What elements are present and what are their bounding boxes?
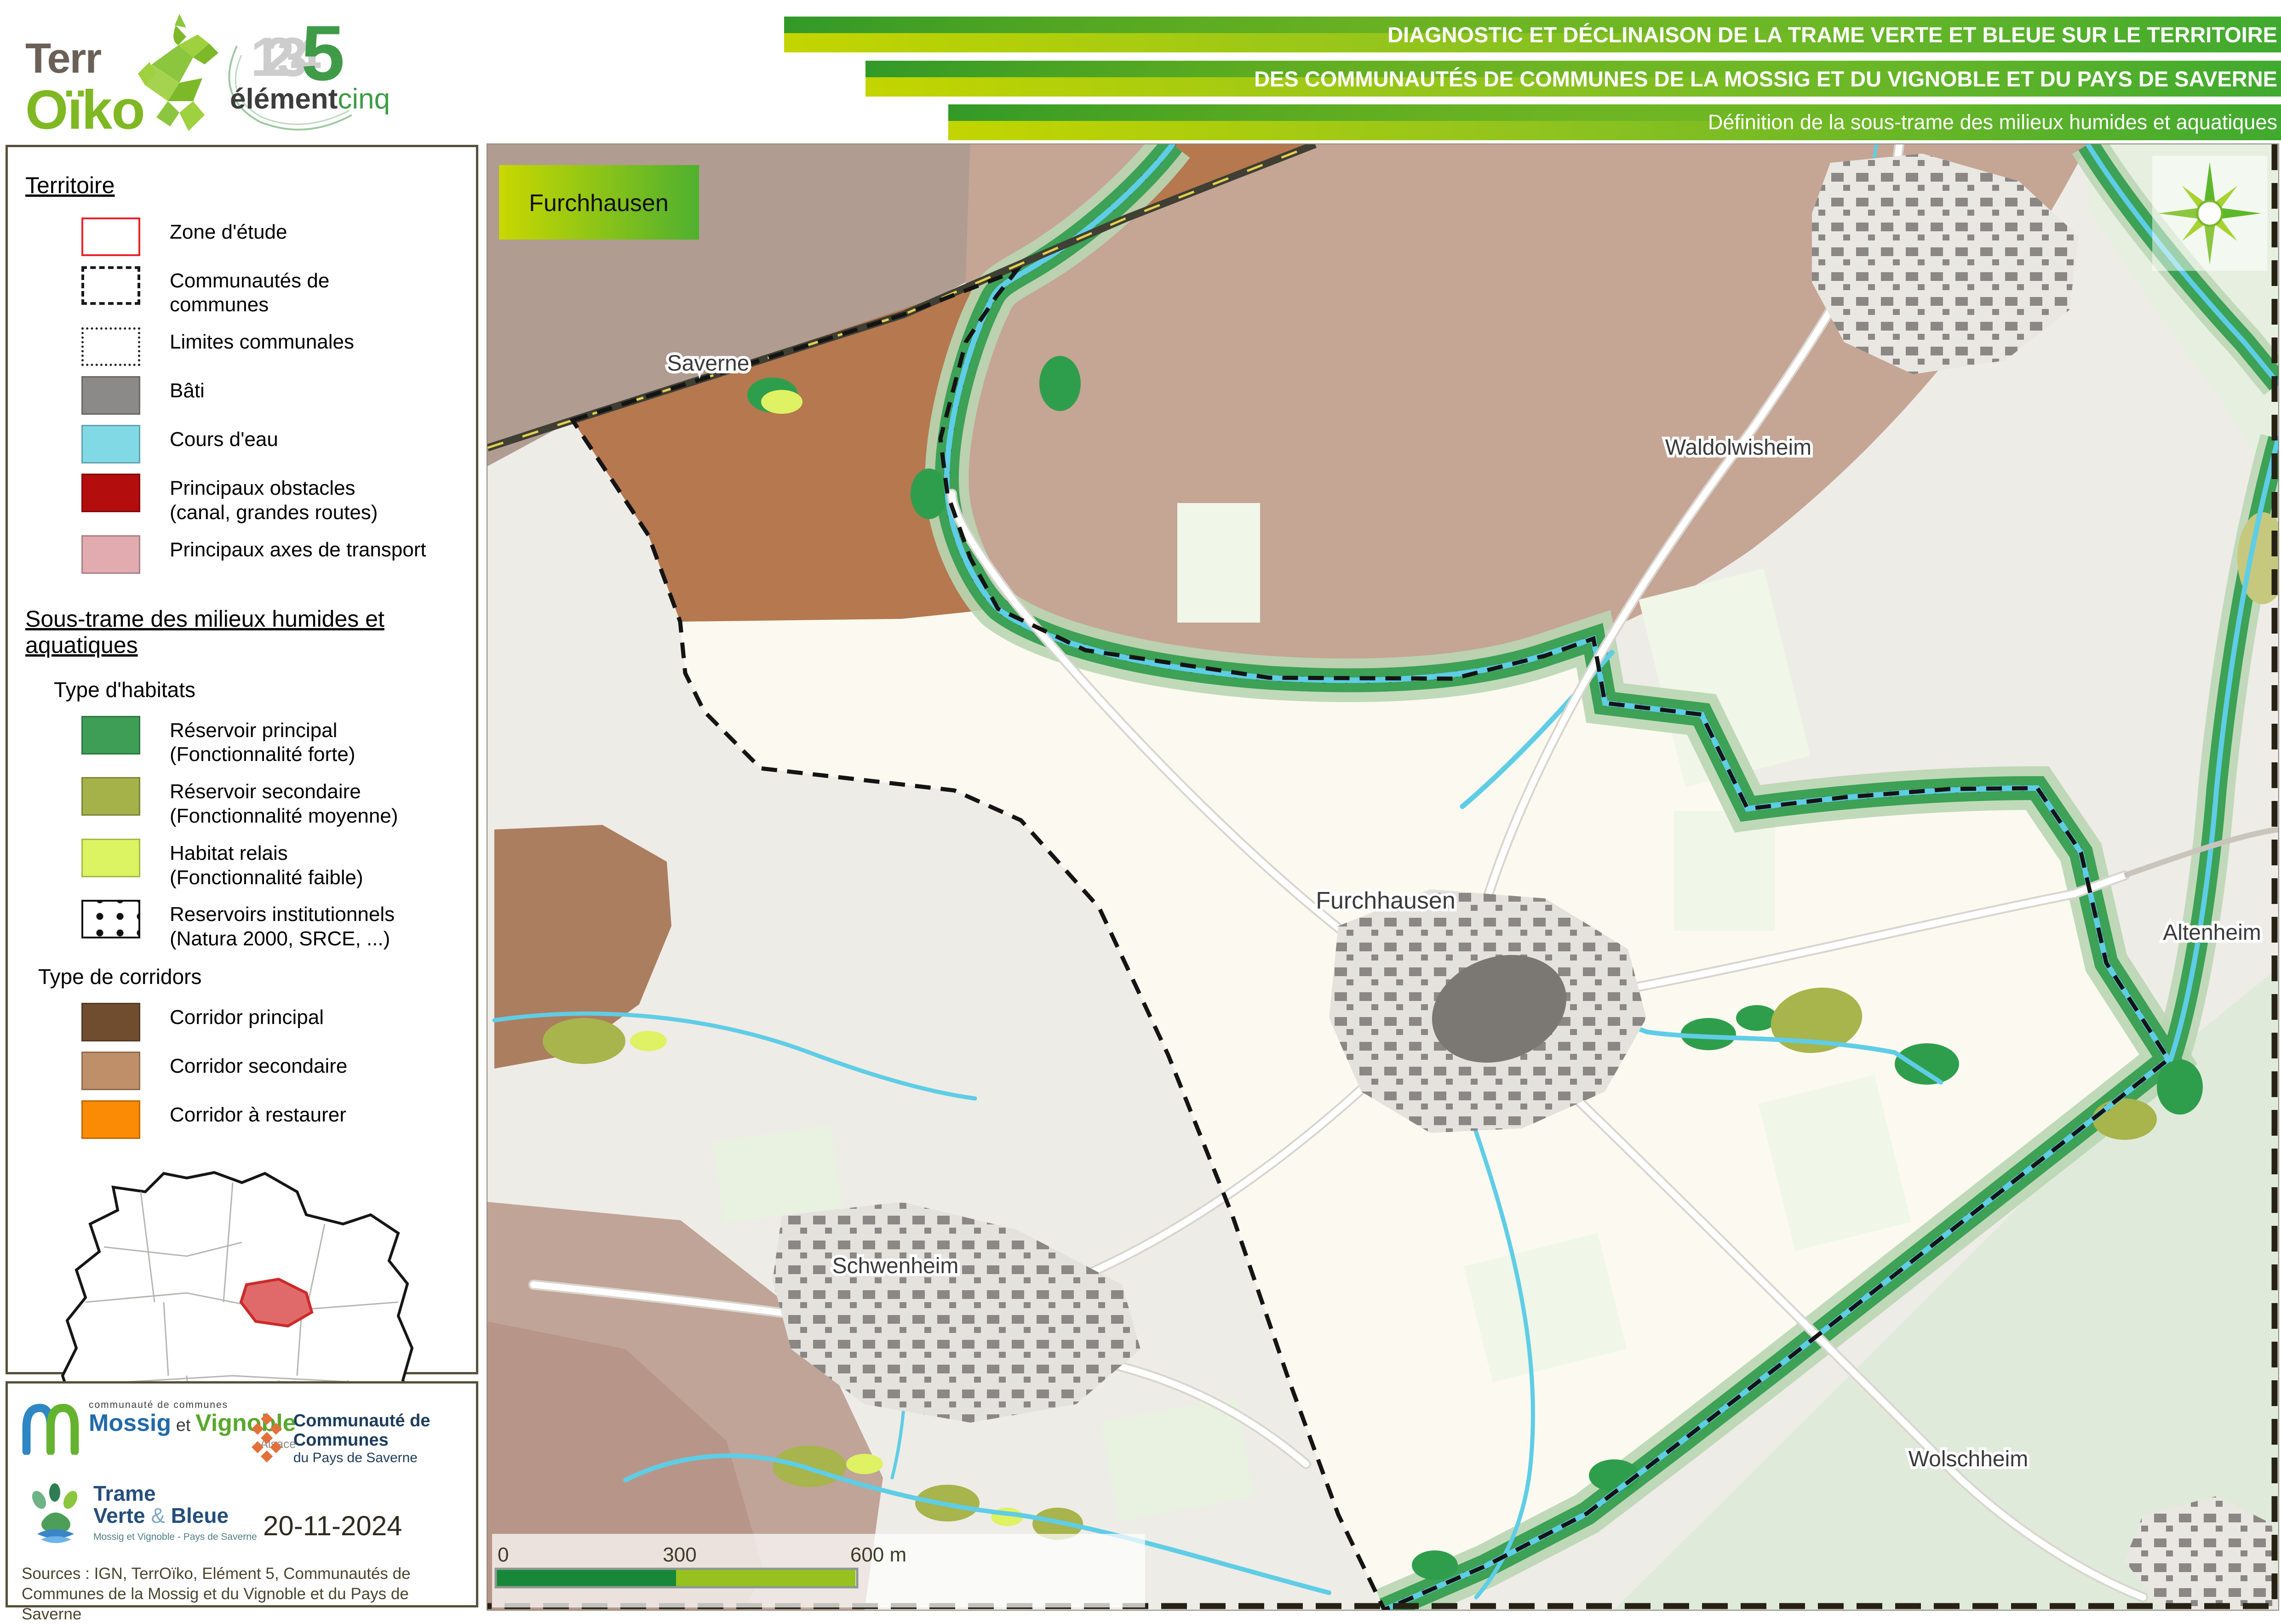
axes-transport-swatch bbox=[81, 535, 140, 574]
label-line1: Habitat relais bbox=[170, 841, 363, 866]
legend-item-label: Corridor secondaire bbox=[170, 1052, 347, 1079]
cours-eau-swatch bbox=[81, 425, 140, 463]
terroiko-wordmark-terr: Terr bbox=[25, 34, 101, 83]
label-line1: Réservoir secondaire bbox=[170, 780, 398, 804]
scale-tick-0: 0 bbox=[498, 1544, 509, 1566]
tvb-bleue: Bleue bbox=[165, 1504, 229, 1527]
element5-digits: 1234 bbox=[251, 25, 304, 89]
mossig-m-icon bbox=[21, 1400, 80, 1455]
legend-item-label: Principaux obstacles(canal, grandes rout… bbox=[170, 474, 378, 525]
element5-wordmark: élémentcinq bbox=[230, 83, 390, 115]
terroiko-logo: Terr Oïko bbox=[25, 9, 218, 138]
legend-item-habitat-relais: Habitat relais(Fonctionnalité faible) bbox=[25, 839, 458, 890]
limites-swatch bbox=[81, 327, 140, 366]
label-line2: (Fonctionnalité moyenne) bbox=[170, 804, 398, 829]
label-line2: (Fonctionnalité forte) bbox=[170, 743, 355, 767]
legend-item-reservoir-secondaire: Réservoir secondaire(Fonctionnalité moye… bbox=[25, 777, 458, 829]
scale-tick-300: 300 bbox=[663, 1544, 696, 1566]
legend-item-reservoirs-institutionnels: Reservoirs institutionnels(Natura 2000, … bbox=[25, 900, 458, 951]
mossig-name1: Mossig bbox=[89, 1410, 171, 1436]
map-canvas: Saverne Waldolwisheim Furchhausen Altenh… bbox=[487, 144, 2278, 1610]
bati-swatch bbox=[81, 376, 140, 415]
pays-de-saverne-logo: Communauté de Communes du Pays de Savern… bbox=[247, 1407, 476, 1471]
tvb-subtitle: Mossig et Vignoble - Pays de Saverne bbox=[93, 1532, 257, 1543]
frog-icon bbox=[124, 9, 225, 138]
scale-bar: 0 300 600 m bbox=[492, 1534, 1145, 1607]
scale-segment-left bbox=[497, 1570, 676, 1586]
corridor-restaurer-swatch bbox=[81, 1100, 140, 1139]
label-line2: (canal, grandes routes) bbox=[170, 501, 378, 525]
credits-panel: communauté de communes Mossig et Vignobl… bbox=[6, 1381, 478, 1607]
compass-rose-icon bbox=[2152, 156, 2267, 271]
legend-item-cours-eau: Cours d'eau bbox=[25, 425, 458, 463]
tvb-verte: Verte bbox=[93, 1504, 151, 1527]
banner-title-line2: DES COMMUNAUTÉS DE COMMUNES DE LA MOSSIG… bbox=[865, 61, 2281, 97]
legend-item-label: Réservoir principal(Fonctionnalité forte… bbox=[170, 716, 355, 767]
map-label-altenheim: Altenheim bbox=[2163, 921, 2261, 945]
legend-item-label: Communautés de communes bbox=[170, 266, 367, 318]
map-date: 20-11-2024 bbox=[263, 1510, 402, 1542]
mossig-et: et bbox=[171, 1416, 195, 1435]
scale-tick-600: 600 m bbox=[850, 1544, 906, 1566]
corridor-principal-swatch bbox=[81, 1003, 140, 1041]
trame-verte-bleue-logo: Trame Verte & Bleue Mossig et Vignoble -… bbox=[26, 1482, 257, 1547]
element5-logo: 1234 5 élémentcinq bbox=[225, 14, 363, 133]
legend-subtitle-corridors: Type de corridors bbox=[38, 964, 458, 989]
legend-item-label: Cours d'eau bbox=[170, 425, 278, 452]
legend-item-zone-etude: Zone d'étude bbox=[25, 217, 458, 256]
legend-item-label: Reservoirs institutionnels(Natura 2000, … bbox=[170, 900, 395, 951]
habitat-relais-swatch bbox=[81, 839, 140, 877]
legend-item-corridor-secondaire: Corridor secondaire bbox=[25, 1052, 458, 1090]
tvb-line2: Verte & Bleue bbox=[93, 1504, 257, 1527]
tvb-amp: & bbox=[151, 1504, 165, 1527]
legend-item-obstacles: Principaux obstacles(canal, grandes rout… bbox=[25, 474, 458, 525]
saverne-line2: du Pays de Saverne bbox=[293, 1450, 476, 1466]
map-label-wolschheim: Wolschheim bbox=[1908, 1447, 2029, 1471]
legend-item-corridor-restaurer: Corridor à restaurer bbox=[25, 1100, 458, 1139]
reservoirs-institutionnels-swatch bbox=[81, 900, 140, 938]
banner-title-line3: Définition de la sous-trame des milieux … bbox=[948, 104, 2281, 140]
obstacles-swatch bbox=[81, 474, 140, 512]
legend-item-label: Corridor à restaurer bbox=[170, 1100, 346, 1127]
label-line2: (Natura 2000, SRCE, ...) bbox=[170, 927, 395, 951]
scale-segment-right bbox=[676, 1570, 855, 1586]
legend-panel: Territoire Zone d'étude Communautés de c… bbox=[6, 145, 478, 1374]
element5-word-dark: élément bbox=[230, 83, 338, 115]
sources-text: Sources : IGN, TerrOïko, Elément 5, Comm… bbox=[22, 1564, 458, 1624]
legend-item-bati: Bâti bbox=[25, 376, 458, 415]
tvb-wordmark: Trame Verte & Bleue Mossig et Vignoble -… bbox=[93, 1482, 257, 1547]
legend-item-label: Limites communales bbox=[170, 327, 354, 355]
map-title-text: Furchhausen bbox=[529, 190, 669, 217]
element5-word-green: cinq bbox=[338, 83, 390, 115]
legend-title-sous-trame: Sous-trame des milieux humides et aquati… bbox=[25, 606, 458, 659]
communautes-swatch bbox=[81, 266, 140, 305]
label-line2: (Fonctionnalité faible) bbox=[170, 866, 363, 890]
legend-subtitle-habitats: Type d'habitats bbox=[54, 677, 458, 702]
legend-item-limites: Limites communales bbox=[25, 327, 458, 366]
map-label-schwenheim: Schwenheim bbox=[832, 1254, 959, 1278]
legend-item-axes-transport: Principaux axes de transport bbox=[25, 535, 458, 574]
legend-item-corridor-principal: Corridor principal bbox=[25, 1003, 458, 1041]
tvb-paw-icon bbox=[26, 1482, 86, 1547]
corridor-secondaire-swatch bbox=[81, 1052, 140, 1090]
saverne-line1: Communauté de Communes bbox=[293, 1412, 476, 1450]
legend-item-label: Corridor principal bbox=[170, 1003, 324, 1030]
legend-item-reservoir-principal: Réservoir principal(Fonctionnalité forte… bbox=[25, 716, 458, 767]
legend-item-label: Bâti bbox=[170, 376, 205, 403]
banner-title-line1: DIAGNOSTIC ET DÉCLINAISON DE LA TRAME VE… bbox=[784, 17, 2281, 52]
legend-item-label: Principaux axes de transport bbox=[170, 535, 426, 562]
label-line1: Reservoirs institutionnels bbox=[170, 903, 395, 927]
legend-item-label: Habitat relais(Fonctionnalité faible) bbox=[170, 839, 363, 890]
legend-item-label: Réservoir secondaire(Fonctionnalité moye… bbox=[170, 777, 398, 829]
legend-item-communautes: Communautés de communes bbox=[25, 266, 458, 318]
banner-line1-text: DIAGNOSTIC ET DÉCLINAISON DE LA TRAME VE… bbox=[1387, 22, 2277, 47]
tvb-line1: Trame bbox=[93, 1482, 257, 1504]
label-line1: Réservoir principal bbox=[170, 719, 355, 743]
saverne-wordmark: Communauté de Communes du Pays de Savern… bbox=[293, 1412, 476, 1466]
legend-item-label: Zone d'étude bbox=[170, 217, 287, 245]
reservoir-principal-swatch bbox=[81, 716, 140, 755]
banner-line3-text: Définition de la sous-trame des milieux … bbox=[1708, 110, 2277, 134]
banner-line2-text: DES COMMUNAUTÉS DE COMMUNES DE LA MOSSIG… bbox=[1254, 66, 2277, 91]
main-map: Saverne Waldolwisheim Furchhausen Altenh… bbox=[487, 143, 2279, 1611]
map-label-waldolwisheim: Waldolwisheim bbox=[1665, 435, 1811, 460]
legend-title-territoire: Territoire bbox=[25, 172, 458, 199]
zone-etude-swatch bbox=[81, 217, 140, 256]
map-title-box: Furchhausen bbox=[499, 165, 699, 240]
map-label-saverne: Saverne bbox=[667, 351, 750, 376]
reservoir-secondaire-swatch bbox=[81, 777, 140, 816]
saverne-diamonds-icon bbox=[247, 1407, 286, 1471]
label-line1: Principaux obstacles bbox=[170, 476, 378, 501]
map-label-furchhausen: Furchhausen bbox=[1316, 887, 1456, 914]
